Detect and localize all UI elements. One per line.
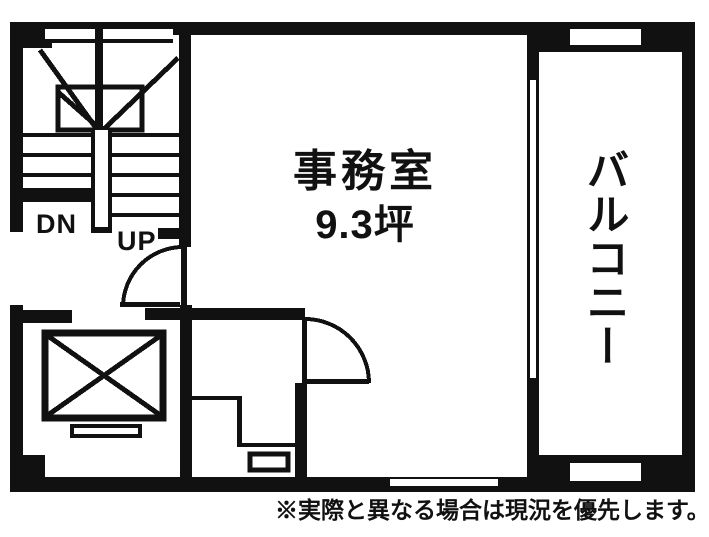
entrance-door-swing [120,247,187,307]
wall-hall-right [180,305,192,477]
wall-corner-bottom-left [10,455,45,492]
disclaimer-note: ※実際と異なる場合は現況を優先します。 [275,499,703,522]
stairs-down-label: DN [36,211,77,238]
office-door-arc [305,319,369,383]
elevator-symbol [45,333,163,436]
stair-center-divider [95,22,103,130]
wall-office-south [145,308,305,320]
wall-stairwell-right [179,22,191,247]
stairs-up-label: UP [117,228,157,255]
entrance-door-arc [123,247,183,307]
wc-room [192,396,298,470]
wall-wc-right [295,383,307,477]
entrance-door-leaf [181,247,187,307]
stair-top-landing-line [45,39,173,43]
stair-rail-inner [95,130,108,227]
bottom-wall-window [390,479,498,486]
office-door-leaf [302,318,307,383]
stair-top-landing-band [45,29,173,39]
elevator-door-sill [72,426,140,436]
stair-winder-inner [58,92,100,129]
floor-plan: DN UP 事務室 9.3坪 バルコニー ※実際と異なる場合は現況を優先します。 [0,0,709,537]
office-area-label: 9.3坪 [245,205,485,245]
wc-partition-top [192,396,240,400]
wc-partition-vertical [237,396,242,447]
balcony-label: バルコニー [582,148,625,388]
wall-right [682,22,695,492]
wc-partition-bottom [242,443,298,447]
stair-treads-right [112,133,179,239]
entrance-door-closed-line [120,302,180,307]
wc-tank [250,454,288,470]
balcony-window-slit [530,80,536,378]
balcony-hatch-bottom [568,461,643,483]
staircase [10,22,179,239]
office-door-swing [302,318,369,384]
balcony-hatch-top [568,27,643,47]
office-door-closed-line [305,379,369,384]
office-room-label: 事務室 [245,150,485,194]
wall-elevator-top [10,310,72,323]
